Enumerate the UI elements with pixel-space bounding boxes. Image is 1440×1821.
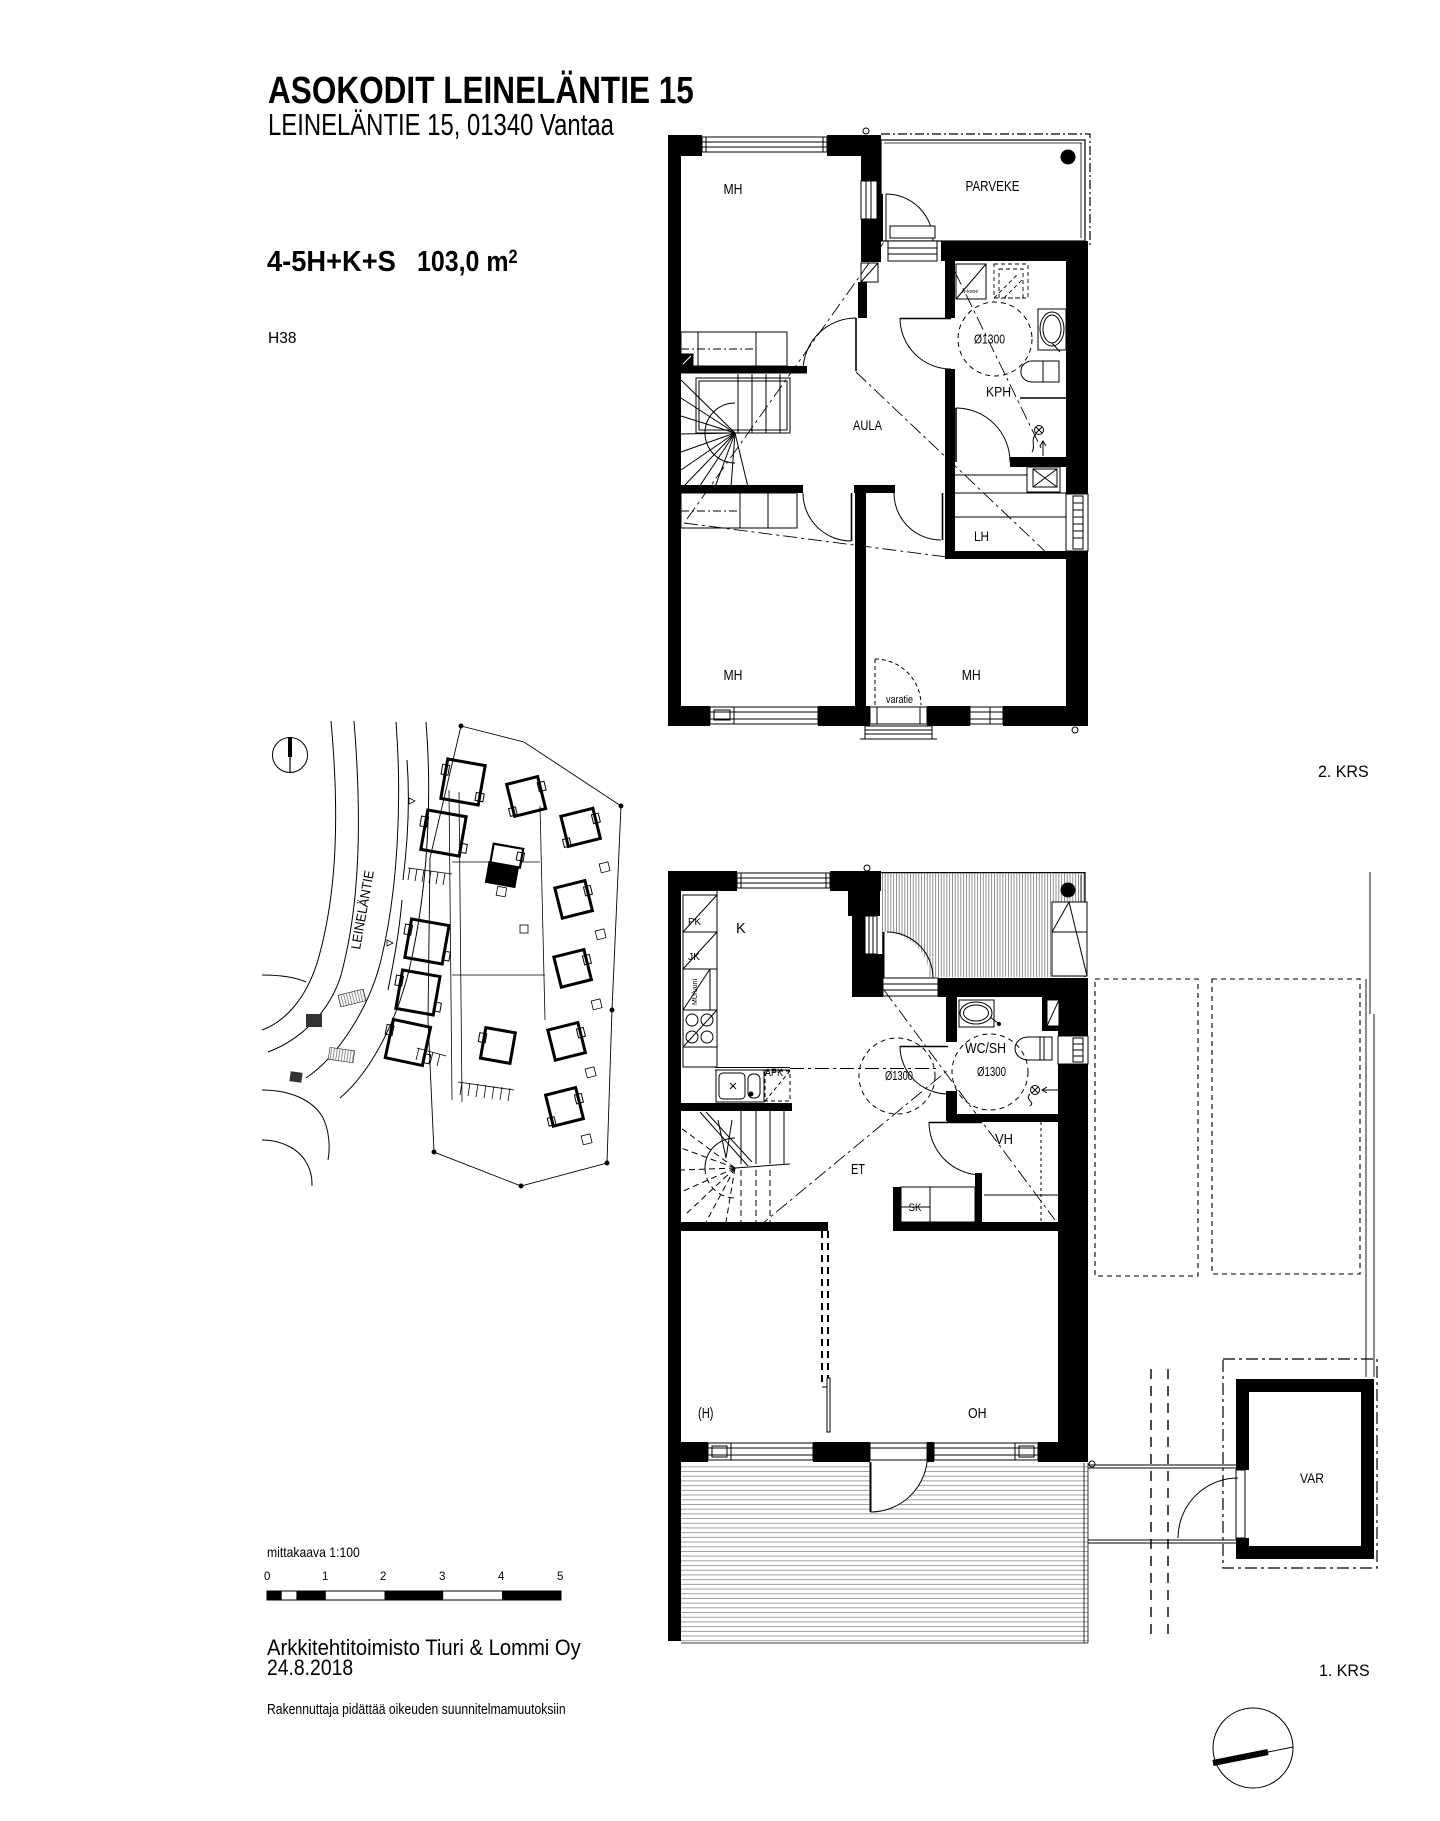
svg-text:MH: MH — [962, 668, 981, 684]
svg-text:4: 4 — [498, 1571, 505, 1583]
svg-text:AULA: AULA — [853, 417, 883, 433]
svg-text:varatie: varatie — [886, 694, 913, 706]
svg-text:MU/uuni: MU/uuni — [692, 978, 699, 1005]
svg-text:MH: MH — [724, 182, 743, 198]
svg-text:LH: LH — [974, 528, 989, 544]
svg-text:Ø1300: Ø1300 — [885, 1068, 913, 1083]
svg-text:VAR: VAR — [1300, 1470, 1324, 1486]
svg-text:Ø1300: Ø1300 — [977, 1064, 1006, 1079]
svg-text:ET: ET — [851, 1161, 865, 1178]
svg-text:VH: VH — [995, 1131, 1013, 1148]
svg-text:KPH: KPH — [986, 384, 1011, 400]
svg-text:(H): (H) — [698, 1405, 714, 1422]
svg-text:LEINELÄNTIE: LEINELÄNTIE — [348, 869, 377, 950]
svg-text:iv-kone: iv-kone — [962, 289, 978, 295]
svg-text:2: 2 — [380, 1571, 386, 1583]
svg-text:Ø1300: Ø1300 — [974, 332, 1005, 347]
svg-text:PARVEKE: PARVEKE — [966, 178, 1020, 195]
svg-text:5: 5 — [557, 1571, 563, 1583]
svg-text:0: 0 — [264, 1571, 270, 1583]
svg-text:SK: SK — [909, 1202, 923, 1214]
svg-text:APK: APK — [765, 1067, 784, 1079]
svg-text:3: 3 — [439, 1571, 445, 1583]
svg-text:OH: OH — [968, 1405, 987, 1422]
svg-text:1: 1 — [322, 1571, 328, 1583]
svg-text:K: K — [736, 921, 746, 937]
svg-text:MH: MH — [724, 668, 743, 684]
svg-text:JK: JK — [688, 951, 700, 963]
svg-text:WC/SH: WC/SH — [965, 1040, 1006, 1057]
svg-text:PK: PK — [688, 916, 701, 928]
